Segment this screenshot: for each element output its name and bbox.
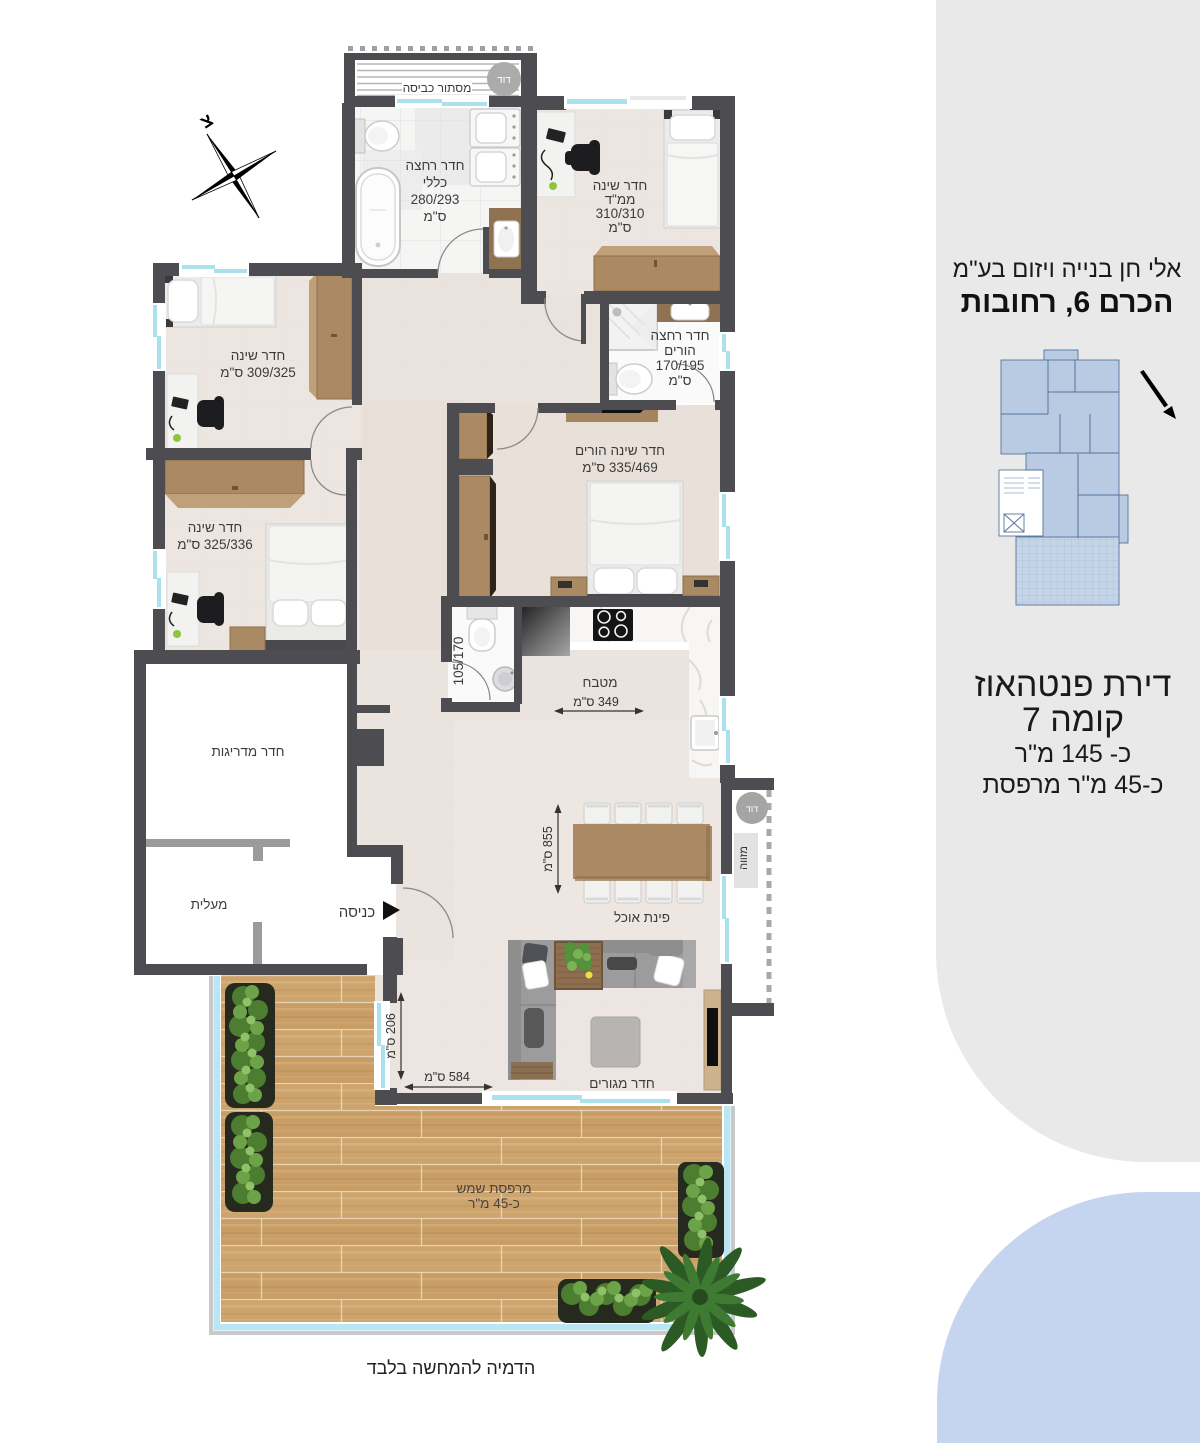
svg-text:פינת אוכל: פינת אוכל [614,910,670,925]
svg-text:כ-45 מ"ר: כ-45 מ"ר [468,1196,520,1211]
svg-text:דוד: דוד [746,804,758,814]
svg-text:ממ"ד: ממ"ד [605,192,636,207]
svg-text:206 ס"מ: 206 ס"מ [384,1013,398,1059]
svg-text:כללי: כללי [423,175,448,190]
svg-text:אלי חן בנייה ויזום בע"מ: אלי חן בנייה ויזום בע"מ [953,256,1182,283]
svg-text:חדר שינה הורים: חדר שינה הורים [575,443,665,458]
svg-text:הכרם 6, רחובות: הכרם 6, רחובות [961,286,1174,319]
svg-text:כ-45 מ"ר מרפסת: כ-45 מ"ר מרפסת [982,771,1163,799]
svg-text:חדר שינה: חדר שינה [231,348,286,363]
svg-text:349 ס"מ: 349 ס"מ [573,695,619,709]
svg-text:335/469 ס"מ: 335/469 ס"מ [582,460,657,475]
svg-text:584 ס"מ: 584 ס"מ [424,1070,470,1084]
svg-text:855 ס"מ: 855 ס"מ [541,826,555,872]
svg-text:כ- 145 מ"ר: כ- 145 מ"ר [1015,740,1131,768]
svg-text:ס"מ: ס"מ [609,220,632,235]
svg-text:דירת פנטהאוז: דירת פנטהאוז [975,666,1172,704]
svg-text:חדר מדריגות: חדר מדריגות [211,744,284,759]
svg-text:ס"מ: ס"מ [424,209,447,224]
svg-text:כניסה: כניסה [339,904,376,921]
svg-text:חדר רחצה: חדר רחצה [406,158,465,173]
svg-text:מזווה: מזווה [738,846,750,870]
svg-text:280/293: 280/293 [411,192,460,207]
svg-text:325/336 ס"מ: 325/336 ס"מ [177,537,252,552]
svg-text:חדר רחצה: חדר רחצה [651,328,710,343]
svg-text:קומה 7: קומה 7 [1022,701,1124,739]
svg-text:105/170: 105/170 [451,637,466,686]
svg-text:ס"מ: ס"מ [669,373,692,388]
svg-text:הדמיה להמחשה בלבד: הדמיה להמחשה בלבד [367,1358,536,1378]
svg-text:מרפסת שמש: מרפסת שמש [457,1181,532,1196]
svg-text:חדר שינה: חדר שינה [593,178,648,193]
svg-text:חדר שינה: חדר שינה [188,520,243,535]
svg-text:309/325 ס"מ: 309/325 ס"מ [220,365,295,380]
svg-text:דוד: דוד [497,75,511,86]
svg-text:170/195: 170/195 [656,358,705,373]
svg-text:מטבח: מטבח [582,675,617,690]
svg-text:מסתור כביסה: מסתור כביסה [403,81,472,95]
svg-text:310/310: 310/310 [596,206,645,221]
svg-text:הורים: הורים [664,343,696,358]
svg-text:חדר מגורים: חדר מגורים [589,1076,654,1091]
svg-text:מעלית: מעלית [191,897,228,912]
